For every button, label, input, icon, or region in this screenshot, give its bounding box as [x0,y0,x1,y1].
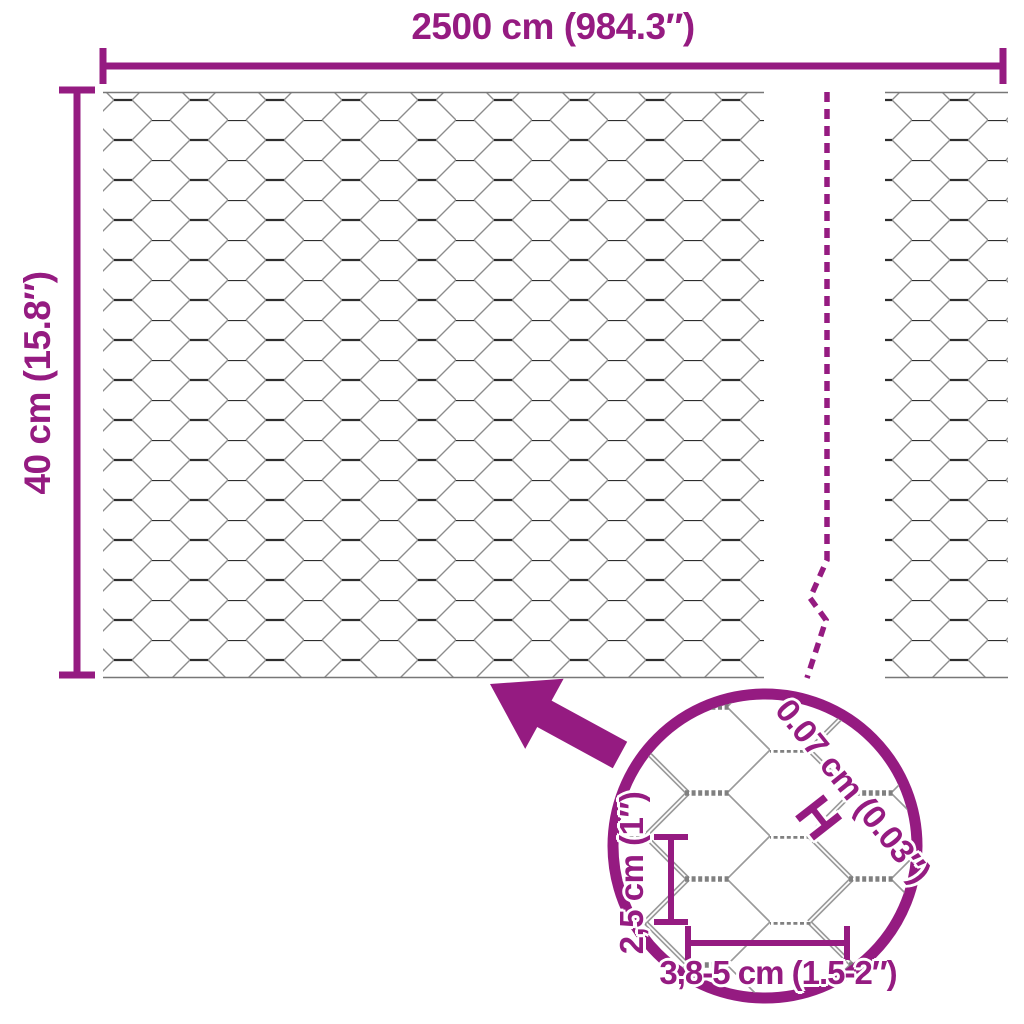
diagram-graphics [0,0,1024,1024]
mesh-width-label: 3,8-5 cm (1.5-2″) [659,954,896,992]
total-width-label: 2500 cm (984.3″) [411,6,694,48]
width-dimension-line [103,48,1003,84]
length-break-dashed-line [807,92,827,678]
roll-height-label: 40 cm (15.8″) [17,271,59,494]
mesh-height-label: 2,5 cm (1″) [613,792,651,955]
zoom-arrow-icon [490,679,627,769]
mesh-panel-main [103,92,764,678]
height-dimension-line [59,90,95,675]
mesh-panel-right [885,92,1008,678]
product-dimension-diagram: 2500 cm (984.3″) 40 cm (15.8″) 0.07 cm (… [0,0,1024,1024]
